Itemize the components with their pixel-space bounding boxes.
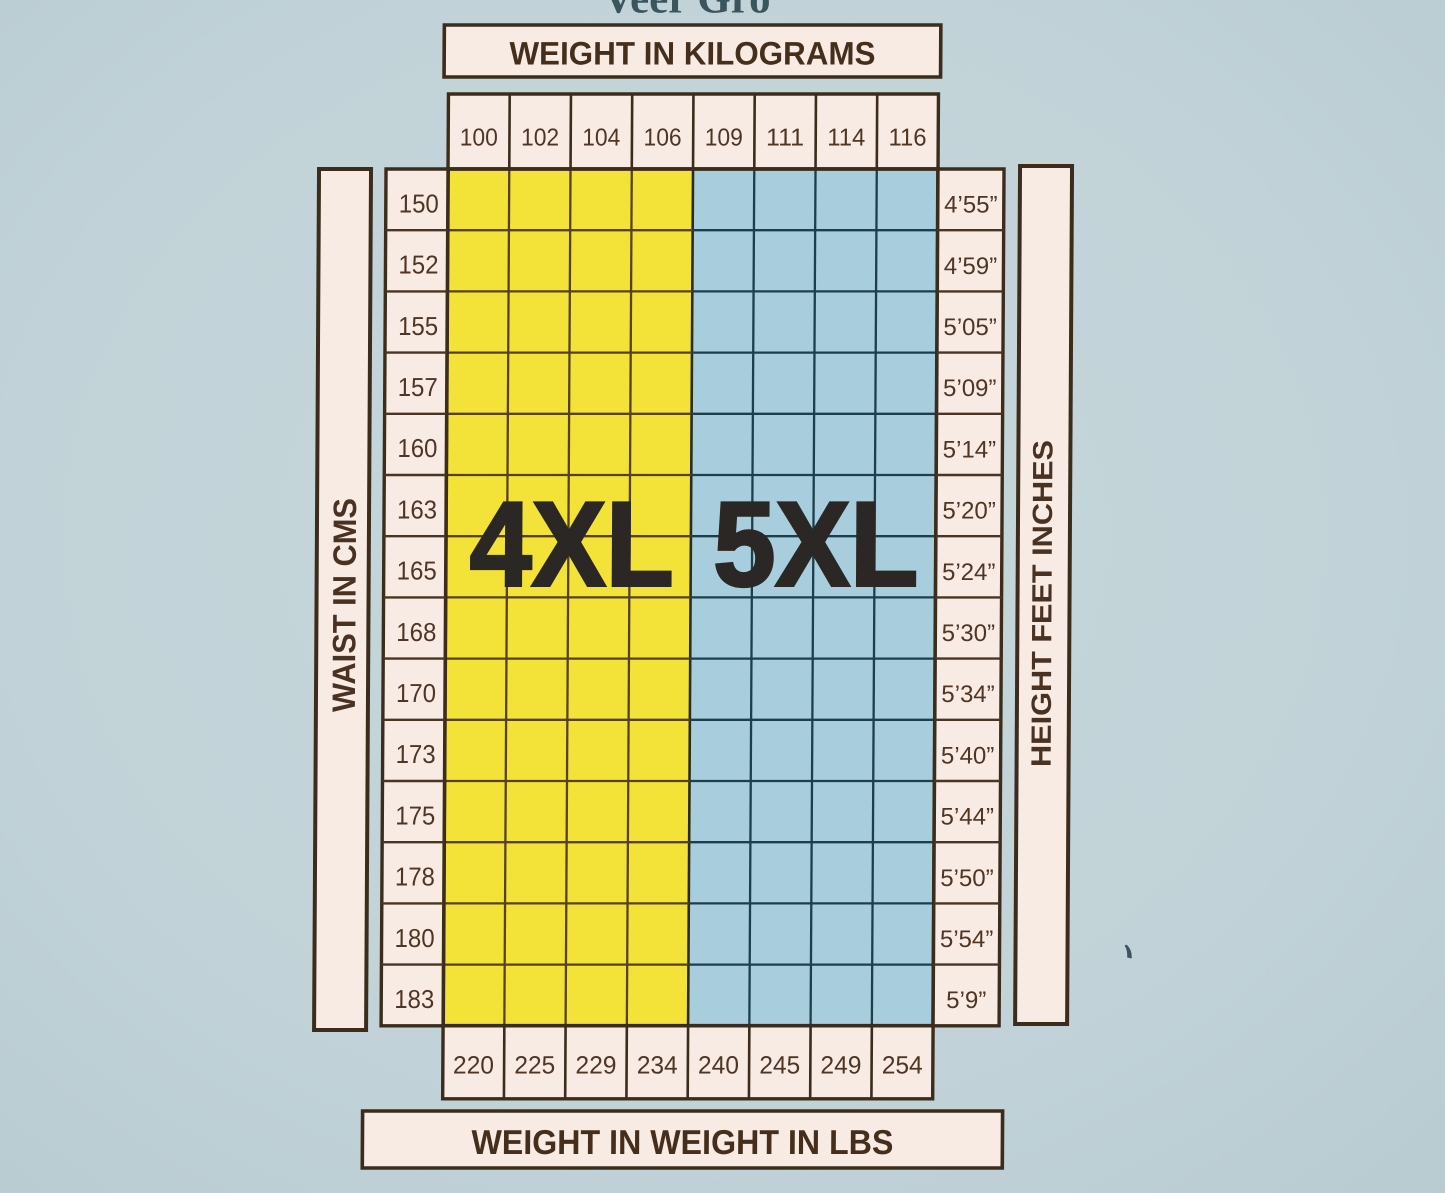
- svg-text:5’20”: 5’20”: [942, 498, 996, 525]
- svg-text:180: 180: [395, 923, 435, 953]
- svg-text:4’55”: 4’55”: [944, 192, 998, 219]
- svg-text:5XL: 5XL: [713, 478, 919, 612]
- svg-text:220: 220: [453, 1052, 494, 1080]
- svg-text:157: 157: [398, 372, 438, 402]
- svg-text:114: 114: [827, 125, 865, 152]
- svg-text:111: 111: [766, 125, 804, 152]
- svg-text:102: 102: [521, 125, 559, 152]
- svg-text:104: 104: [582, 125, 620, 152]
- svg-text:106: 106: [644, 125, 682, 152]
- svg-text:5’09”: 5’09”: [943, 375, 997, 402]
- svg-text:183: 183: [394, 984, 434, 1014]
- svg-text:100: 100: [460, 125, 498, 152]
- svg-text:225: 225: [514, 1052, 555, 1080]
- svg-text:HEIGHT FEET INCHES: HEIGHT FEET INCHES: [1026, 440, 1059, 767]
- svg-text:5’34”: 5’34”: [941, 681, 995, 708]
- svg-text:245: 245: [759, 1052, 800, 1080]
- svg-text:173: 173: [396, 739, 436, 769]
- svg-text:5’54”: 5’54”: [940, 926, 994, 953]
- svg-text:229: 229: [575, 1052, 616, 1080]
- svg-text:4XL: 4XL: [469, 478, 674, 612]
- svg-text:5’40”: 5’40”: [941, 742, 995, 769]
- svg-text:116: 116: [889, 125, 927, 152]
- svg-text:109: 109: [705, 125, 743, 152]
- svg-text:5’24”: 5’24”: [942, 559, 996, 586]
- svg-text:150: 150: [399, 188, 439, 218]
- svg-text:152: 152: [398, 250, 438, 280]
- svg-text:WEIGHT IN WEIGHT IN LBS: WEIGHT IN WEIGHT IN LBS: [471, 1124, 893, 1162]
- svg-text:240: 240: [698, 1052, 739, 1080]
- svg-text:Veer Gro: Veer Gro: [603, 0, 771, 22]
- svg-text:WAIST IN CMS: WAIST IN CMS: [326, 498, 363, 712]
- svg-text:234: 234: [637, 1052, 678, 1080]
- svg-text:5’9”: 5’9”: [946, 987, 986, 1014]
- svg-text:5’05”: 5’05”: [943, 314, 997, 341]
- svg-text:254: 254: [882, 1052, 923, 1080]
- svg-text:165: 165: [397, 556, 437, 586]
- svg-text:163: 163: [397, 494, 437, 524]
- svg-text:155: 155: [398, 311, 438, 341]
- svg-text:4’59”: 4’59”: [944, 253, 998, 280]
- svg-text:5’50”: 5’50”: [940, 865, 994, 892]
- svg-text:249: 249: [820, 1052, 861, 1080]
- svg-text:5’14”: 5’14”: [943, 436, 997, 463]
- svg-text:168: 168: [396, 617, 436, 647]
- svg-text:160: 160: [397, 433, 437, 463]
- svg-text:178: 178: [395, 862, 435, 892]
- svg-text:5’44”: 5’44”: [941, 804, 995, 831]
- svg-text:175: 175: [395, 800, 435, 830]
- svg-text:5’30”: 5’30”: [942, 620, 996, 647]
- svg-text:170: 170: [396, 678, 436, 708]
- svg-text:WEIGHT IN KILOGRAMS: WEIGHT IN KILOGRAMS: [509, 36, 875, 72]
